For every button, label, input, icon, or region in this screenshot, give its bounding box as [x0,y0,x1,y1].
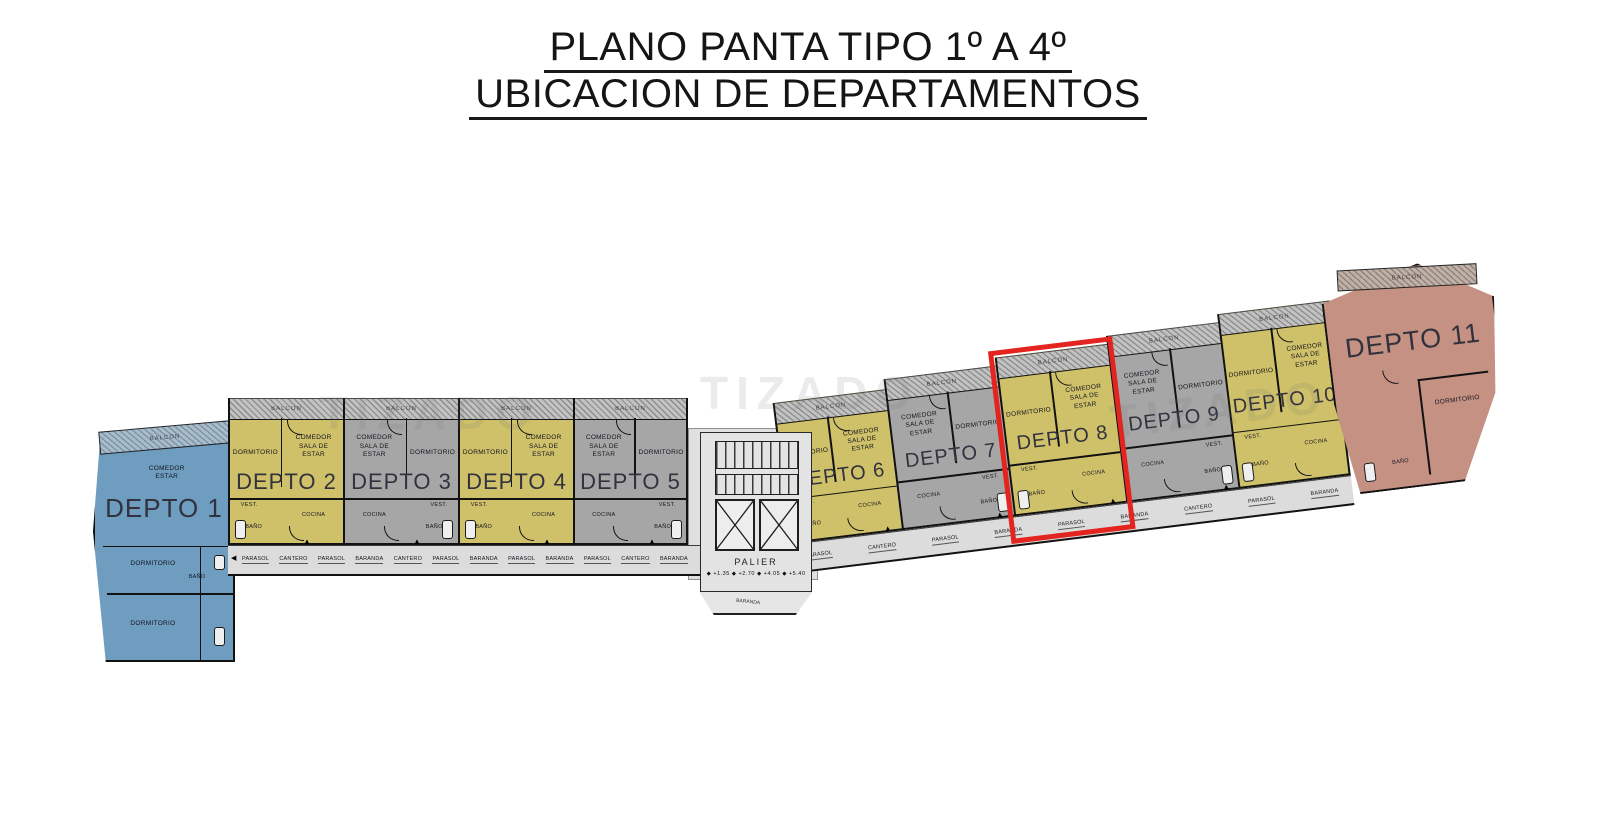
room-label-cocina: COCINA [519,512,569,519]
door-arc [1276,327,1293,344]
room-label-dormitorio: DORMITORIO [112,560,195,568]
entry-arrow-icon: ▲ [883,525,892,534]
door-arc [1294,461,1311,478]
palier-label: PALIER [701,557,811,567]
watermark-text: TIZADO [700,366,919,420]
room-label-dormitorio: DORMITORIO [114,620,191,628]
corridor-label: PARASOL [508,556,535,564]
apartment-depto-1: COMEDOR ESTAR DEPTO 1 DORMITORIO BAÑO DO… [93,420,235,662]
room-label-cocina: COCINA [579,512,628,519]
apartment-title: DEPTO 2 [230,469,343,495]
corridor-label: CANTERO [868,542,897,553]
entry-arrow-icon: ▲ [1222,483,1231,492]
corridor-label: PARASOL [242,556,269,564]
apartment-title: DEPTO 4 [460,469,573,495]
corridor-label: CANTERO [279,556,307,564]
door-arc [847,516,864,533]
room-label-cocina: COCINA [845,499,894,512]
apartment-depto-1-body: COMEDOR ESTAR DEPTO 1 DORMITORIO BAÑO DO… [93,420,235,662]
corridor-left: ◀ ▲ ▲ ▲ ▲ PARASOLCANTEROPARASOLBARANDACA… [228,545,702,576]
stair-core: PALIER ◆ +1.35 ◆ +2.70 ◆ +4.05 ◆ +5.40 [700,432,812,592]
elevators-icon [715,499,799,551]
baranda-label: BARANDA [736,598,761,606]
door-arc [940,505,957,522]
wall [230,498,343,500]
bathtub-icon [214,555,225,570]
corridor-label: PARASOL [584,556,611,564]
corridor-label: CANTERO [394,556,422,564]
corridor-label: BARANDA [660,556,688,564]
corridor-label: BARANDA [546,556,574,564]
corridor-label: BARANDA [1310,487,1339,498]
bathtub-icon [1364,462,1377,482]
stairs-icon [715,441,799,495]
page-title: PLANO PANTA TIPO 1º A 4º UBICACION DE DE… [0,26,1616,120]
room-label-cocina: COCINA [1128,458,1177,471]
room-label-bano: BAÑO [1380,456,1421,468]
bathtub-icon [465,520,476,539]
room-label-vest: VEST. [976,472,1006,483]
title-line-2: UBICACION DE DEPARTAMENTOS [469,73,1147,120]
corridor-label: CANTERO [621,556,649,564]
arrow-left-icon: ◀ [231,555,236,562]
apartment-title: DEPTO 1 [95,493,233,524]
palier-level-markers: ◆ +1.35 ◆ +2.70 ◆ +4.05 ◆ +5.40 [701,571,811,577]
right-wing: BALCONDORMITORIOCOMEDOR SALA DE ESTARDEP… [761,283,1530,612]
door-arc [287,420,302,435]
landing-extension: BARANDA [694,591,818,615]
apartment-depto-5: BALCONDORMITORIOCOMEDOR SALA DE ESTARDEP… [573,398,688,545]
door-arc [616,420,631,435]
room-label-comedor-estar: COMEDOR ESTAR [125,465,208,482]
room-label-dormitorio: DORMITORIO [637,449,685,457]
room-label-cocina: COCINA [289,512,339,519]
entry-arrow-icon: ▲ [413,538,421,546]
door-arc [289,526,304,541]
door-arc [1164,477,1181,494]
entry-arrow-icon: ▲ [303,538,311,546]
door-arc [1151,351,1168,368]
bathtub-icon [214,627,225,646]
watermark-text: TIZADO [320,386,539,440]
bathtub-icon [442,520,453,539]
corridor-label: BARANDA [355,556,383,564]
room-label-comedor: COMEDOR SALA DE ESTAR [1278,341,1333,372]
room-label-dormitorio: DORMITORIO [461,449,510,457]
apartment-rooms: DORMITORIOCOMEDOR SALA DE ESTARDEPTO 5VE… [575,418,686,543]
room-label-dormitorio: DORMITORIO [408,449,457,457]
entry-arrow-icon: ▲ [543,538,551,546]
corridor-label: PARASOL [1248,495,1276,506]
corridor-label: PARASOL [932,534,960,545]
door-arc [519,526,534,541]
room-label-comedor: COMEDOR SALA DE ESTAR [577,434,630,459]
corridor-label: BARANDA [470,556,498,564]
door-arc [613,526,628,541]
room-label-vest: VEST. [1199,440,1229,451]
room-label-cocina: COCINA [1292,436,1340,449]
room-label-dormitorio: DORMITORIO [1424,393,1492,410]
door-arc [384,526,399,541]
wall [107,593,233,595]
apartment-title: DEPTO 5 [575,469,686,495]
room-label-vest: VEST. [653,502,682,509]
corridor-label: CANTERO [1184,503,1213,514]
wall [103,546,233,548]
wall [575,498,686,500]
floor-plan-canvas: PLANO PANTA TIPO 1º A 4º UBICACION DE DE… [0,0,1616,818]
room-label-vest: VEST. [235,502,264,509]
stair-rail [716,468,798,475]
balcony-depto-5: BALCON [575,398,686,420]
corridor-label: PARASOL [432,556,459,564]
wall [200,546,202,660]
corridor-label: PARASOL [318,556,345,564]
room-label-cocina: COCINA [350,512,400,519]
room-label-vest: VEST. [465,502,494,509]
door-arc [1383,369,1400,386]
room-label-cocina: COCINA [904,489,953,502]
room-label-vest: VEST. [1238,432,1267,443]
bathtub-icon [235,520,246,539]
room-label-dormitorio: DORMITORIO [231,449,280,457]
room-label-vest: VEST. [424,502,453,509]
wall [345,498,458,500]
apartment-title: DEPTO 3 [345,469,458,495]
bathtub-icon [671,520,682,539]
door-arc [928,394,945,411]
entry-arrow-icon: ▲ [648,538,656,546]
balcony-label: BALCON [575,399,686,419]
room-label-bano: BAÑO [183,574,211,581]
apartment-depto-11: DEPTO 11 DORMITORIO BAÑO BALCON [1318,255,1516,496]
title-line-1: PLANO PANTA TIPO 1º A 4º [544,26,1073,73]
wall [1418,371,1488,381]
entry-arrow-icon: ▲ [996,511,1005,520]
apartment-title: DEPTO 11 [1328,315,1499,366]
room-label-dormitorio: DORMITORIO [954,418,1002,432]
wall [460,498,573,500]
